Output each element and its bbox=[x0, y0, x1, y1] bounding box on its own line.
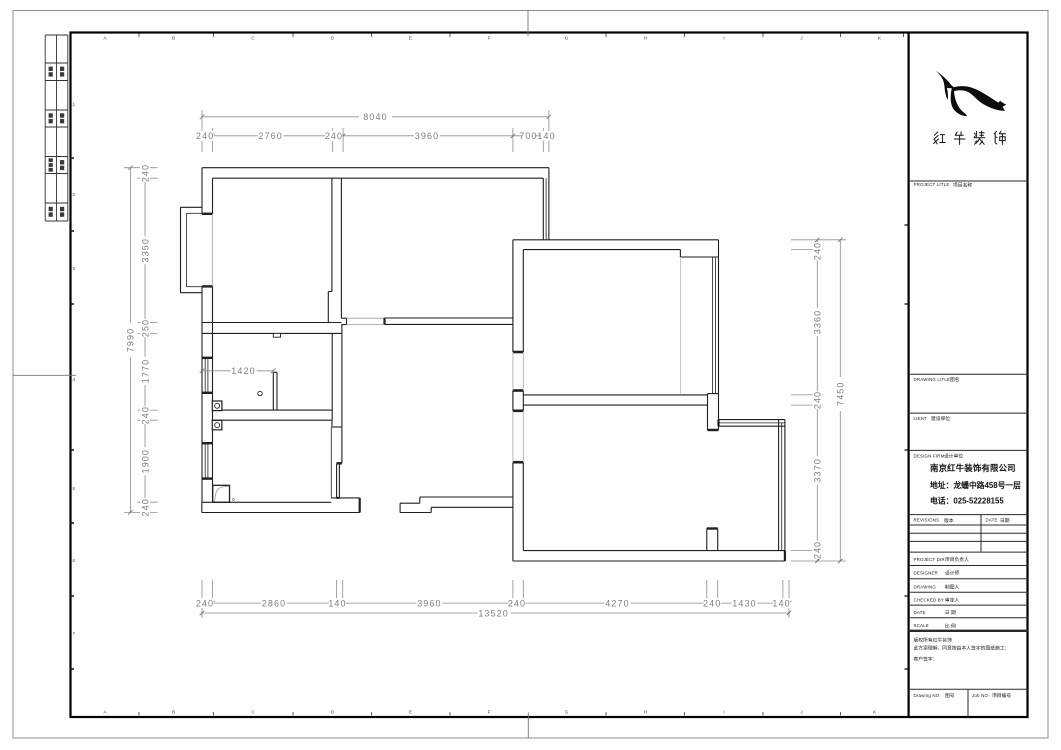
svg-text:3960: 3960 bbox=[417, 599, 441, 609]
svg-text:DESIGNER: DESIGNER bbox=[914, 571, 939, 576]
svg-text:E: E bbox=[409, 36, 412, 41]
svg-text:2760: 2760 bbox=[258, 131, 282, 141]
svg-text:REVISIONS: REVISIONS bbox=[914, 518, 940, 523]
svg-text:240: 240 bbox=[813, 242, 823, 260]
svg-text:南京红牛装饰有限公司: 南京红牛装饰有限公司 bbox=[930, 463, 1016, 473]
svg-text:240: 240 bbox=[196, 131, 214, 141]
svg-text:240: 240 bbox=[325, 131, 343, 141]
svg-text:6: 6 bbox=[73, 558, 76, 563]
svg-text:8040: 8040 bbox=[363, 112, 387, 122]
svg-text:J: J bbox=[800, 710, 802, 715]
svg-text:240: 240 bbox=[813, 541, 823, 559]
svg-text:电话：025-52228155: 电话：025-52228155 bbox=[930, 496, 1004, 506]
svg-text:B: B bbox=[172, 36, 175, 41]
svg-text:1770: 1770 bbox=[140, 359, 150, 383]
svg-text:DRAWING LITLE: DRAWING LITLE bbox=[914, 377, 951, 382]
svg-text:250: 250 bbox=[140, 319, 150, 337]
svg-text:E: E bbox=[409, 710, 412, 715]
svg-text:日期: 日期 bbox=[1000, 518, 1010, 524]
svg-text:4: 4 bbox=[73, 377, 76, 382]
svg-text:H: H bbox=[644, 710, 647, 715]
svg-text:5: 5 bbox=[73, 486, 76, 491]
svg-text:建设单位: 建设单位 bbox=[931, 415, 950, 422]
svg-text:PROJECT DIR: PROJECT DIR bbox=[914, 557, 945, 562]
svg-text:1900: 1900 bbox=[140, 449, 150, 473]
svg-text:PROJECT LITLE: PROJECT LITLE bbox=[914, 182, 950, 187]
svg-text:DATE: DATE bbox=[986, 518, 998, 523]
svg-text:240: 240 bbox=[196, 599, 214, 609]
svg-text:版本: 版本 bbox=[944, 517, 954, 524]
svg-text:图号: 图号 bbox=[945, 693, 955, 699]
svg-text:3360: 3360 bbox=[813, 310, 823, 334]
svg-text:项目名称: 项目名称 bbox=[953, 181, 972, 188]
svg-text:3: 3 bbox=[73, 266, 76, 271]
svg-text:7990: 7990 bbox=[126, 328, 136, 352]
svg-text:7450: 7450 bbox=[836, 381, 846, 405]
svg-text:客户签字：: 客户签字： bbox=[914, 656, 938, 663]
svg-text:3960: 3960 bbox=[415, 131, 439, 141]
svg-text:版权所有红牛装饰: 版权所有红牛装饰 bbox=[914, 637, 953, 644]
svg-text:3370: 3370 bbox=[813, 458, 823, 482]
svg-text:J: J bbox=[800, 36, 802, 41]
svg-text:图名: 图名 bbox=[950, 376, 960, 383]
svg-text:I: I bbox=[723, 710, 724, 715]
svg-text:240: 240 bbox=[140, 406, 150, 424]
svg-text:B: B bbox=[172, 710, 175, 715]
svg-text:240: 240 bbox=[140, 164, 150, 182]
svg-text:240: 240 bbox=[508, 599, 526, 609]
svg-text:7: 7 bbox=[73, 631, 76, 636]
svg-text:140: 140 bbox=[328, 599, 346, 609]
svg-text:H: H bbox=[644, 36, 647, 41]
svg-text:240: 240 bbox=[703, 599, 721, 609]
svg-text:1430: 1430 bbox=[732, 599, 756, 609]
svg-text:1420: 1420 bbox=[231, 366, 255, 376]
svg-text:DRAWING: DRAWING bbox=[914, 584, 937, 589]
svg-text:Job NO: Job NO bbox=[972, 693, 988, 698]
svg-text:I: I bbox=[723, 36, 724, 41]
svg-text:F: F bbox=[488, 36, 491, 41]
svg-text:LIENT: LIENT bbox=[914, 416, 928, 421]
svg-text:设计师: 设计师 bbox=[945, 570, 960, 577]
svg-text:设计单位: 设计单位 bbox=[944, 453, 963, 460]
svg-text:G: G bbox=[565, 36, 569, 41]
svg-text:240: 240 bbox=[813, 391, 823, 409]
svg-text:700: 700 bbox=[519, 131, 537, 141]
svg-text:140: 140 bbox=[537, 131, 555, 141]
svg-text:13520: 13520 bbox=[478, 608, 509, 618]
svg-text:140: 140 bbox=[772, 599, 790, 609]
svg-text:此方案理解、同意按由本人签字的图纸施工：: 此方案理解、同意按由本人签字的图纸施工： bbox=[914, 645, 1010, 652]
svg-text:项目负责人: 项目负责人 bbox=[945, 556, 969, 563]
svg-text:2860: 2860 bbox=[262, 599, 286, 609]
svg-text:DESIGN FIRM: DESIGN FIRM bbox=[914, 453, 945, 458]
svg-text:项目编号: 项目编号 bbox=[992, 692, 1011, 699]
svg-text:G: G bbox=[565, 710, 569, 715]
svg-text:3350: 3350 bbox=[140, 238, 150, 262]
svg-text:CHECKED BY: CHECKED BY bbox=[914, 597, 945, 602]
svg-text:DATE: DATE bbox=[914, 610, 926, 615]
svg-text:240: 240 bbox=[140, 498, 150, 516]
svg-text:4270: 4270 bbox=[605, 599, 629, 609]
svg-text:日 期: 日 期 bbox=[945, 610, 956, 616]
svg-text:F: F bbox=[488, 710, 491, 715]
svg-text:制图人: 制图人 bbox=[945, 584, 960, 591]
svg-text:1: 1 bbox=[73, 102, 76, 107]
svg-text:审定人: 审定人 bbox=[945, 597, 960, 604]
svg-text:SCALE: SCALE bbox=[914, 623, 929, 628]
svg-text:2: 2 bbox=[73, 192, 76, 197]
svg-text:Drawing NO: Drawing NO bbox=[914, 693, 940, 698]
svg-text:地址：龙蟠中路458号一层: 地址：龙蟠中路458号一层 bbox=[930, 480, 1021, 490]
svg-text:比 例: 比 例 bbox=[945, 622, 956, 629]
